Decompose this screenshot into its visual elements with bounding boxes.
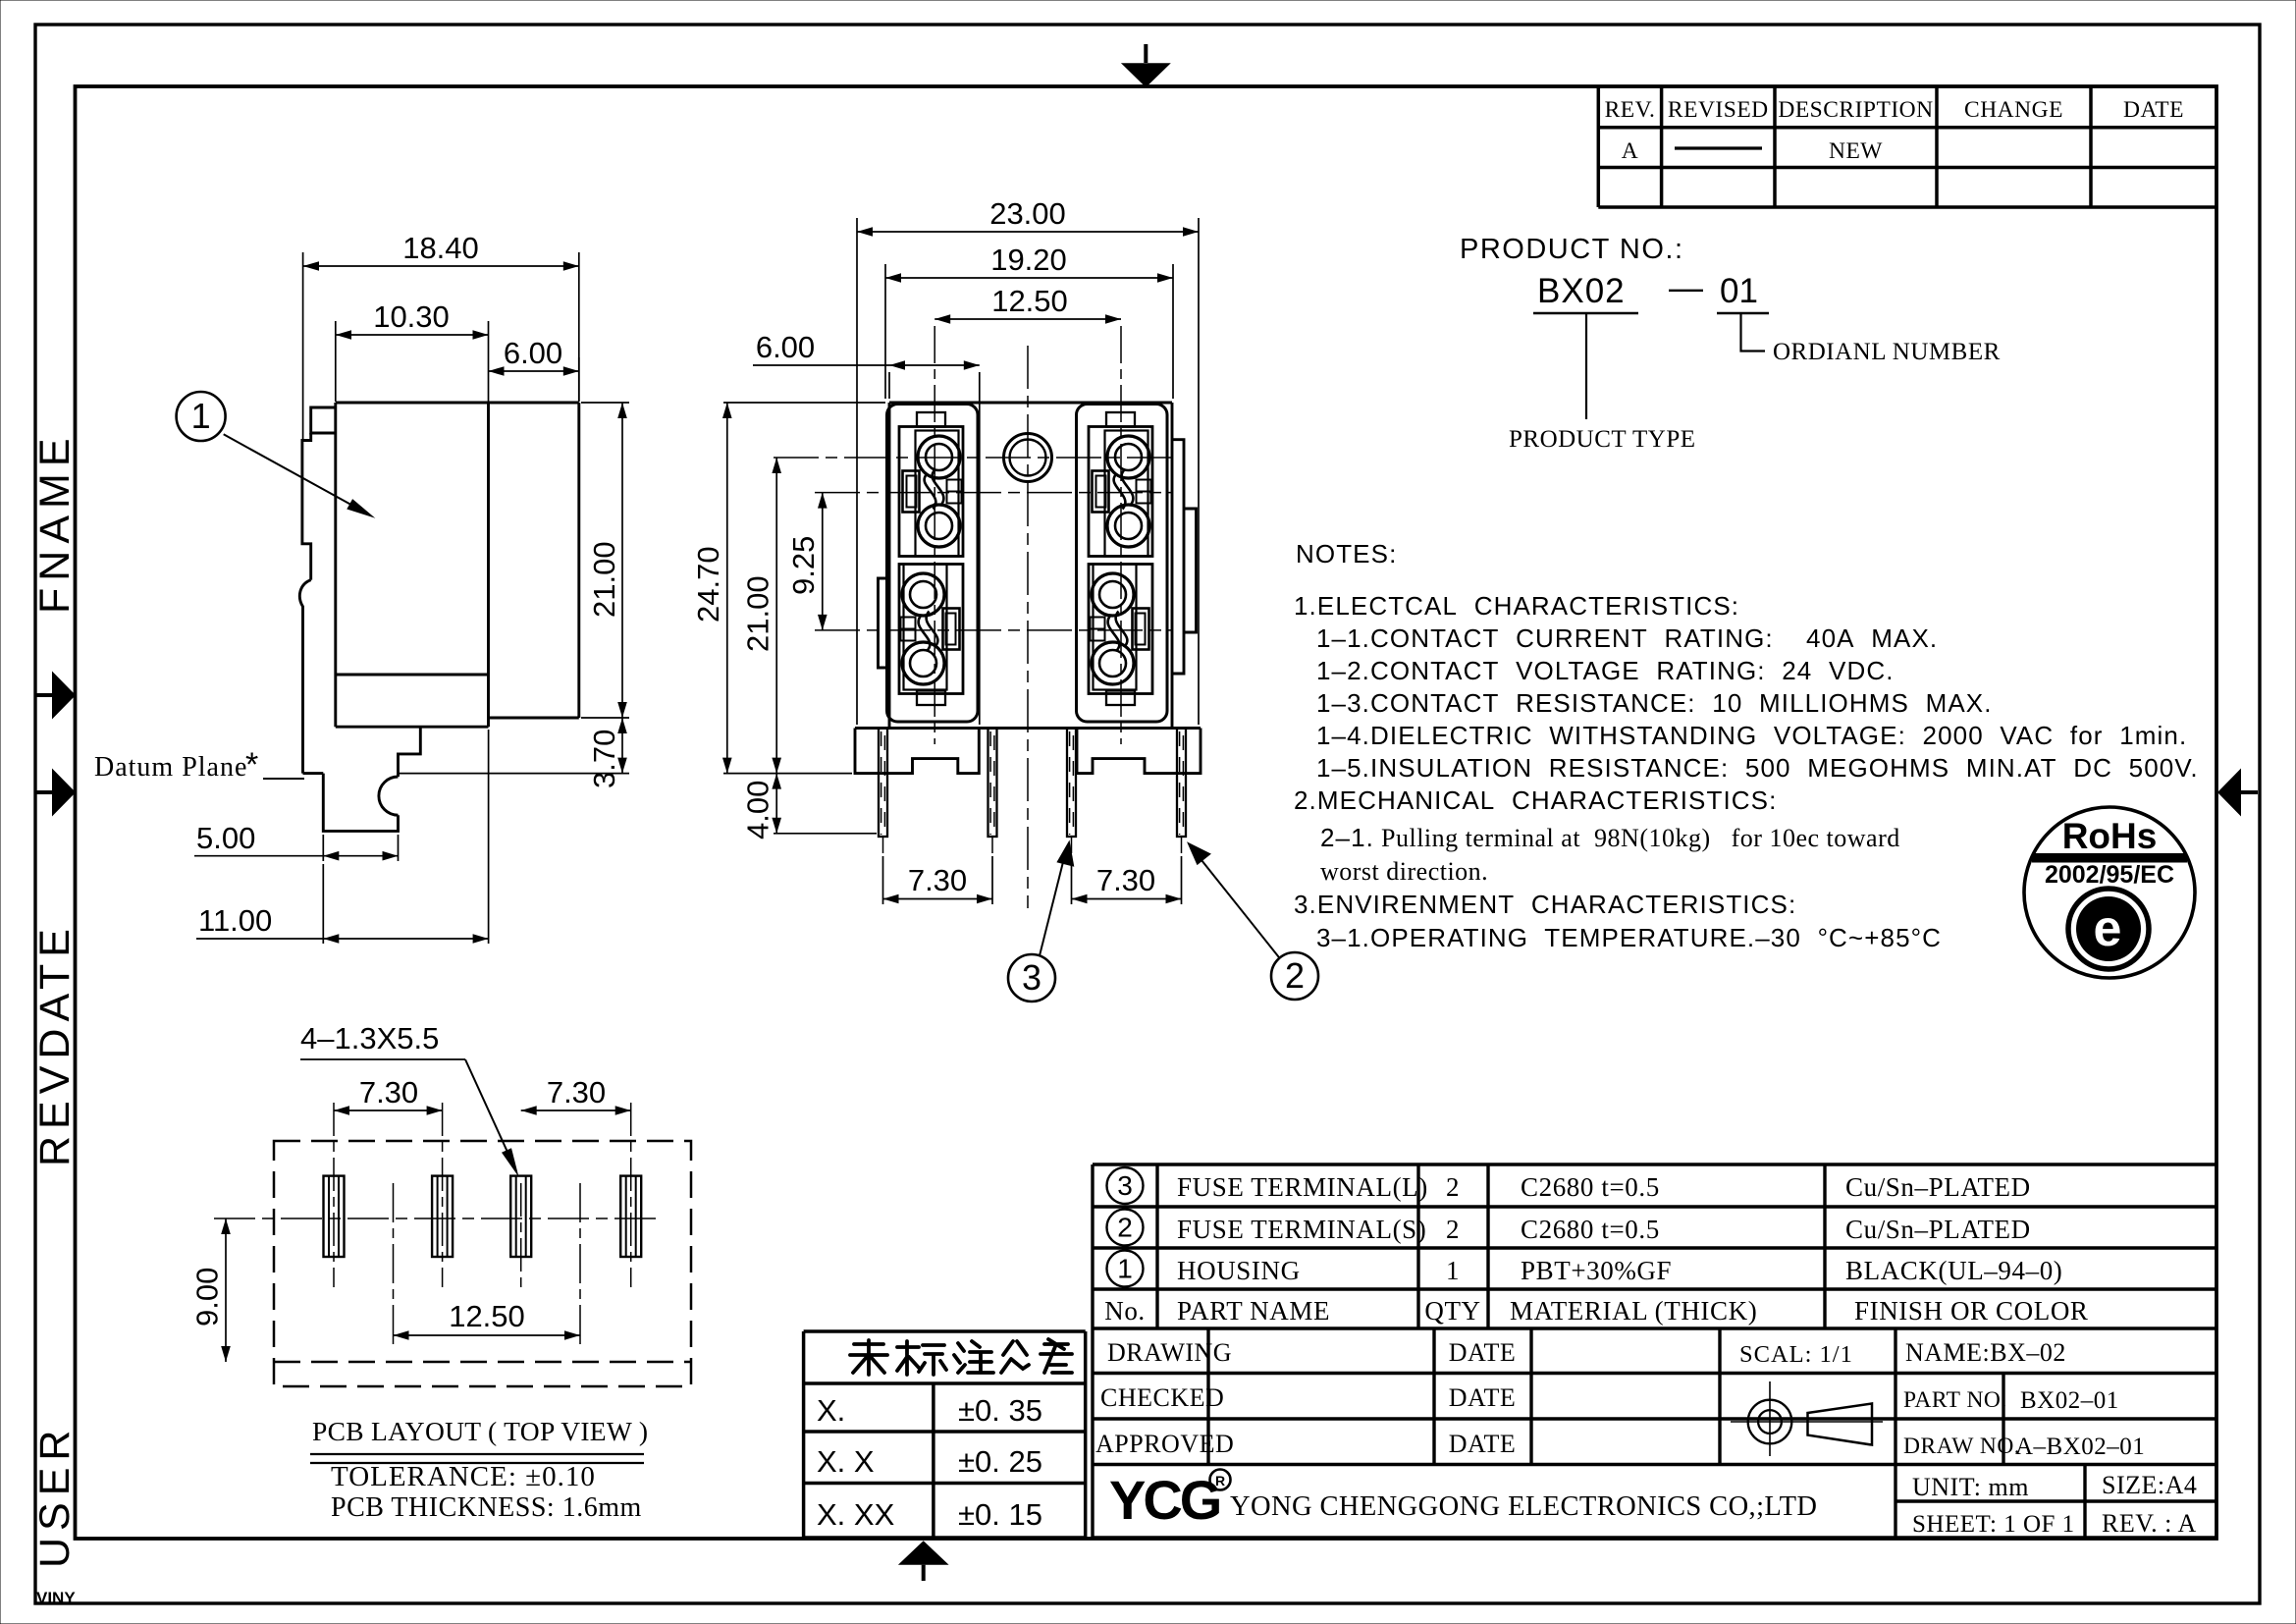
svg-text:3: 3 — [1117, 1170, 1133, 1201]
svg-text:FUSE TERMINAL(L): FUSE TERMINAL(L) — [1177, 1172, 1428, 1202]
svg-text:1–4.DIELECTRIC WITHSTANDING: 1–4.DIELECTRIC WITHSTANDING VOLTAGE: 200… — [1316, 721, 2187, 750]
svg-text:APPROVED: APPROVED — [1095, 1430, 1234, 1458]
svg-text:21.00: 21.00 — [587, 541, 621, 618]
svg-text:e: e — [2094, 900, 2122, 957]
svg-text:18.40: 18.40 — [402, 231, 479, 265]
svg-text:12.50: 12.50 — [991, 284, 1068, 318]
svg-text:11.00: 11.00 — [198, 903, 272, 938]
svg-text:3.70: 3.70 — [587, 730, 621, 788]
svg-text:Datum Plane: Datum Plane — [94, 752, 247, 783]
svg-text:4.00: 4.00 — [741, 781, 775, 839]
svg-text:PBT+30%GF: PBT+30%GF — [1521, 1256, 1672, 1285]
svg-text:VINY: VINY — [36, 1589, 76, 1607]
svg-text:TOLERANCE: ±0.10: TOLERANCE: ±0.10 — [331, 1461, 596, 1492]
svg-text:UNIT: mm: UNIT: mm — [1912, 1473, 2029, 1501]
svg-text:±0. 15: ±0. 15 — [958, 1497, 1042, 1532]
svg-text:CHECKED: CHECKED — [1100, 1383, 1224, 1412]
svg-text:PART NO.: PART NO. — [1903, 1387, 2007, 1413]
svg-text:7.30: 7.30 — [547, 1075, 606, 1110]
svg-text:2002/95/EC: 2002/95/EC — [2045, 861, 2174, 889]
svg-text:1–1.CONTACT CURRENT RATING:: 1–1.CONTACT CURRENT RATING: 40A MAX. — [1316, 623, 1938, 653]
svg-text:A: A — [1622, 138, 1638, 164]
svg-text:21.00: 21.00 — [741, 575, 775, 652]
svg-text:NEW: NEW — [1829, 138, 1883, 164]
svg-text:REV. : A: REV. : A — [2102, 1509, 2197, 1538]
svg-text:YCG: YCG — [1109, 1469, 1220, 1531]
svg-text:2.MECHANICAL CHARACTERISTICS:: 2.MECHANICAL CHARACTERISTICS: — [1294, 785, 1777, 815]
svg-text:1: 1 — [1446, 1256, 1460, 1285]
svg-text:No.: No. — [1104, 1296, 1146, 1326]
svg-text:PRODUCT TYPE: PRODUCT TYPE — [1509, 426, 1696, 453]
svg-text:QTY: QTY — [1424, 1296, 1480, 1326]
svg-text:19.20: 19.20 — [990, 243, 1067, 277]
svg-text:24.70: 24.70 — [691, 546, 725, 623]
svg-text:1–5.INSULATION RESISTANCE: 5: 1–5.INSULATION RESISTANCE: 500 MEGOHMS M… — [1316, 753, 2199, 783]
svg-text:FUSE TERMINAL(S): FUSE TERMINAL(S) — [1177, 1215, 1426, 1244]
svg-text:R: R — [1215, 1473, 1225, 1489]
svg-text:A–BX02–01: A–BX02–01 — [2015, 1434, 2145, 1460]
svg-text:PART NAME: PART NAME — [1177, 1296, 1330, 1326]
svg-text:HOUSING: HOUSING — [1177, 1256, 1301, 1285]
svg-text:X. XX: X. XX — [817, 1497, 895, 1532]
svg-text:PCB THICKNESS: 1.6mm: PCB THICKNESS: 1.6mm — [331, 1492, 642, 1523]
svg-text:worst direction.: worst direction. — [1320, 857, 1488, 886]
svg-text:5.00: 5.00 — [196, 821, 255, 855]
svg-text:Cu/Sn–PLATED: Cu/Sn–PLATED — [1845, 1215, 2031, 1244]
svg-text:DATE: DATE — [1449, 1338, 1516, 1367]
svg-text:CHANGE: CHANGE — [1964, 97, 2063, 123]
svg-text:DATE: DATE — [1449, 1383, 1516, 1412]
svg-text:2: 2 — [1446, 1172, 1460, 1202]
svg-text:±0. 25: ±0. 25 — [958, 1444, 1042, 1479]
svg-text:6.00: 6.00 — [504, 336, 562, 370]
svg-text:1: 1 — [191, 396, 211, 436]
svg-text:REV.: REV. — [1605, 97, 1656, 123]
svg-text:1–2.CONTACT VOLTAGE RATING:: 1–2.CONTACT VOLTAGE RATING: 24 VDC. — [1316, 656, 1895, 685]
svg-text:10.30: 10.30 — [373, 299, 450, 334]
svg-text:REVDATE: REVDATE — [31, 922, 79, 1166]
svg-text:REVISED: REVISED — [1668, 97, 1769, 123]
svg-text:±0. 35: ±0. 35 — [958, 1393, 1042, 1428]
svg-text:SCAL: 1/1: SCAL: 1/1 — [1739, 1341, 1853, 1368]
svg-text:Cu/Sn–PLATED: Cu/Sn–PLATED — [1845, 1172, 2031, 1202]
svg-text:7.30: 7.30 — [359, 1075, 418, 1110]
svg-text:RoHs: RoHs — [2062, 816, 2158, 856]
svg-text:FINISH OR COLOR: FINISH OR COLOR — [1854, 1296, 2089, 1326]
svg-text:NOTES:: NOTES: — [1296, 539, 1397, 568]
svg-text:FNAME: FNAME — [31, 432, 79, 615]
svg-text:PRODUCT NO.:: PRODUCT NO.: — [1460, 234, 1684, 265]
svg-text:MATERIAL (THICK): MATERIAL (THICK) — [1510, 1296, 1757, 1326]
svg-text:1.ELECTCAL CHARACTERISTICS:: 1.ELECTCAL CHARACTERISTICS: — [1294, 591, 1739, 621]
svg-text:7.30: 7.30 — [908, 863, 967, 897]
svg-text:X.: X. — [817, 1393, 845, 1428]
svg-text:USER: USER — [31, 1424, 79, 1568]
svg-text:6.00: 6.00 — [756, 330, 815, 364]
svg-text:9.00: 9.00 — [189, 1268, 224, 1326]
svg-text:7.30: 7.30 — [1096, 863, 1155, 897]
svg-text:C2680 t=0.5: C2680 t=0.5 — [1521, 1172, 1660, 1202]
svg-text:DESCRIPTION: DESCRIPTION — [1778, 97, 1933, 123]
svg-text:01: 01 — [1720, 272, 1758, 310]
svg-text:DATE: DATE — [2123, 97, 2184, 123]
svg-text:4–1.3X5.5: 4–1.3X5.5 — [300, 1021, 439, 1056]
svg-text:2–1. Pulling terminal at 98N(: 2–1. Pulling terminal at 98N(10kg) for 1… — [1320, 823, 1900, 852]
svg-text:NAME:BX–02: NAME:BX–02 — [1905, 1338, 2066, 1367]
svg-text:PCB LAYOUT ( TOP VIEW ): PCB LAYOUT ( TOP VIEW ) — [312, 1416, 648, 1446]
svg-text:C2680 t=0.5: C2680 t=0.5 — [1521, 1215, 1660, 1244]
svg-text:3: 3 — [1022, 957, 1041, 998]
svg-text:DRAWING: DRAWING — [1107, 1338, 1232, 1367]
svg-text:1–3.CONTACT RESISTANCE: 10: 1–3.CONTACT RESISTANCE: 10 MILLIOHMS MAX… — [1316, 688, 1993, 718]
svg-text:ORDIANL NUMBER: ORDIANL NUMBER — [1773, 339, 2001, 365]
svg-text:BLACK(UL–94–0): BLACK(UL–94–0) — [1845, 1256, 2062, 1285]
svg-text:DRAW NO.: DRAW NO. — [1903, 1434, 2020, 1459]
svg-text:1: 1 — [1117, 1254, 1133, 1284]
svg-text:*: * — [245, 746, 258, 784]
svg-text:2: 2 — [1446, 1215, 1460, 1244]
svg-text:9.25: 9.25 — [786, 536, 821, 595]
svg-text:SHEET: 1 OF 1: SHEET: 1 OF 1 — [1912, 1511, 2075, 1538]
svg-text:BX02–01: BX02–01 — [2020, 1387, 2119, 1414]
svg-text:2: 2 — [1285, 955, 1305, 996]
svg-text:SIZE:A4: SIZE:A4 — [2102, 1471, 2197, 1499]
svg-text:3–1.OPERATING TEMPERATURE.–30: 3–1.OPERATING TEMPERATURE.–30 °C~+85°C — [1316, 923, 1942, 952]
svg-text:12.50: 12.50 — [449, 1299, 525, 1333]
svg-text:DATE: DATE — [1449, 1430, 1516, 1458]
svg-text:3.ENVIRENMENT CHARACTERISTICS: 3.ENVIRENMENT CHARACTERISTICS: — [1294, 890, 1796, 919]
svg-text:YONG CHENGGONG ELECTRONICS CO,: YONG CHENGGONG ELECTRONICS CO,;LTD — [1230, 1491, 1817, 1522]
svg-text:2: 2 — [1117, 1213, 1133, 1243]
svg-text:—: — — [1669, 269, 1703, 307]
svg-text:X. X: X. X — [817, 1444, 875, 1479]
svg-text:BX02: BX02 — [1537, 272, 1626, 310]
svg-text:23.00: 23.00 — [989, 196, 1066, 231]
